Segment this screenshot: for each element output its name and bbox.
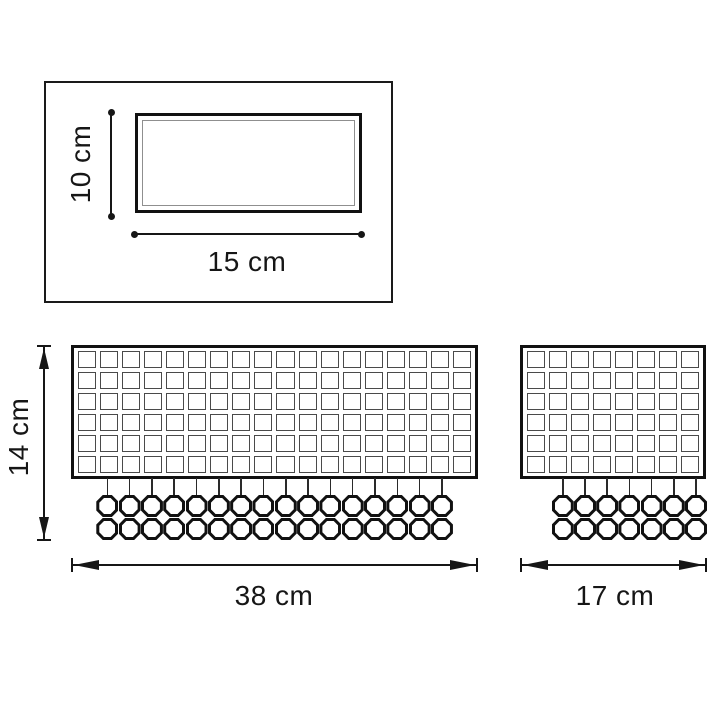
panel-crystal-cell (276, 372, 294, 389)
crystal-octagon (96, 495, 118, 517)
panel-crystal-cell (453, 393, 471, 410)
panel-crystal-cell (122, 414, 140, 431)
dimension-dot (108, 109, 115, 116)
panel-crystal-cell (122, 393, 140, 410)
dimension-cap (705, 558, 707, 572)
panel-crystal-cell (343, 456, 361, 473)
arrowhead-down-icon (39, 517, 49, 538)
panel-crystal-cell (122, 435, 140, 452)
panel-crystal-cell (100, 372, 118, 389)
crystal-octagon (96, 518, 118, 540)
panel-crystal-cell (409, 414, 427, 431)
panel-crystal-cell (166, 351, 184, 368)
panel-crystal-cell (659, 456, 677, 473)
crystal-octagon (552, 518, 574, 540)
panel-crystal-cell (122, 456, 140, 473)
panel-crystal-cell (188, 372, 206, 389)
panel-crystal-cell (593, 456, 611, 473)
dimension-label-width-large: 38 cm (204, 578, 344, 614)
dimension-label-height-front-view: 14 cm (1, 367, 37, 507)
dimension-label-height-top-view: 10 cm (63, 94, 99, 234)
crystal-octagon (641, 495, 663, 517)
panel-crystal-cell (615, 372, 633, 389)
crystal-wire (173, 478, 175, 496)
panel-crystal-cell (276, 435, 294, 452)
crystal-octagon (163, 518, 185, 540)
panel-crystal-cell (78, 393, 96, 410)
panel-crystal-cell (166, 435, 184, 452)
panel-crystal-cell (615, 456, 633, 473)
crystal-octagon (342, 495, 364, 517)
crystal-octagon (552, 495, 574, 517)
panel-crystal-cell (166, 414, 184, 431)
crystal-wire (651, 478, 653, 496)
crystal-wire (330, 478, 332, 496)
panel-crystal-cell (637, 393, 655, 410)
panel-crystal-cell (210, 351, 228, 368)
crystal-wire (419, 478, 421, 496)
crystal-octagon (641, 518, 663, 540)
panel-crystal-cell (527, 351, 545, 368)
crystal-wire (240, 478, 242, 496)
panel-crystal-cell (409, 456, 427, 473)
panel-crystal-cell (549, 393, 567, 410)
panel-crystal-cell (409, 393, 427, 410)
panel-crystal-cell (100, 456, 118, 473)
crystal-wire (562, 478, 564, 496)
panel-crystal-cell (232, 351, 250, 368)
panel-crystal-cell (188, 435, 206, 452)
top-view-fixture-inner-outline (142, 120, 355, 206)
crystal-wire (218, 478, 220, 496)
panel-crystal-cell (409, 435, 427, 452)
panel-crystal-cell (343, 435, 361, 452)
panel-crystal-cell (387, 393, 405, 410)
panel-crystal-cell (431, 414, 449, 431)
panel-crystal-cell (527, 435, 545, 452)
panel-crystal-cell (166, 456, 184, 473)
panel-crystal-cell (637, 372, 655, 389)
panel-crystal-cell (78, 351, 96, 368)
panel-crystal-cell (144, 351, 162, 368)
dimension-dot (358, 231, 365, 238)
crystal-octagon (618, 518, 640, 540)
crystal-octagon (685, 495, 707, 517)
panel-crystal-cell (122, 351, 140, 368)
arrowhead-left-icon (74, 560, 99, 570)
dimension-cap (37, 345, 51, 347)
crystal-octagon (596, 495, 618, 517)
panel-crystal-cell (365, 435, 383, 452)
panel-crystal-cell (365, 393, 383, 410)
crystal-wire (285, 478, 287, 496)
panel-crystal-cell (299, 414, 317, 431)
panel-crystal-cell (681, 372, 699, 389)
panel-crystal-cell (299, 351, 317, 368)
crystal-octagon (230, 495, 252, 517)
panel-crystal-cell (100, 435, 118, 452)
panel-crystal-cell (549, 435, 567, 452)
crystal-wire (107, 478, 109, 496)
panel-crystal-cell (299, 372, 317, 389)
panel-crystal-cell (527, 456, 545, 473)
arrowhead-right-icon (450, 560, 475, 570)
panel-crystal-cell (681, 351, 699, 368)
crystal-wire (352, 478, 354, 496)
panel-crystal-cell (78, 414, 96, 431)
crystal-octagon (663, 518, 685, 540)
panel-crystal-cell (659, 414, 677, 431)
crystal-octagon (141, 518, 163, 540)
crystal-wire (584, 478, 586, 496)
arrowhead-left-icon (523, 560, 548, 570)
top-view-fixture-body (135, 113, 362, 213)
panel-crystal-cell (409, 351, 427, 368)
crystal-wire (263, 478, 265, 496)
crystal-octagon (431, 495, 453, 517)
panel-crystal-cell (431, 435, 449, 452)
crystal-wire (151, 478, 153, 496)
dimension-label-width-top-view: 15 cm (177, 244, 317, 280)
panel-crystal-cell (365, 414, 383, 431)
lamp-dimension-drawing: 10 cm 15 cm 14 cm 38 cm 17 cm (0, 0, 720, 720)
panel-crystal-cell (321, 414, 339, 431)
crystal-octagon (119, 518, 141, 540)
panel-crystal-cell (431, 456, 449, 473)
panel-crystal-cell (188, 414, 206, 431)
panel-crystal-cell (276, 393, 294, 410)
crystal-octagon (431, 518, 453, 540)
panel-crystal-cell (343, 414, 361, 431)
crystal-octagon (409, 495, 431, 517)
panel-crystal-cell (210, 435, 228, 452)
dimension-label-width-small: 17 cm (545, 578, 685, 614)
crystal-octagon (319, 518, 341, 540)
panel-crystal-cell (144, 435, 162, 452)
panel-crystal-cell (615, 414, 633, 431)
panel-crystal-cell (365, 456, 383, 473)
dimension-line-14cm (43, 346, 45, 540)
dimension-cap (476, 558, 478, 572)
front-panel-large (71, 345, 478, 479)
panel-crystal-cell (431, 393, 449, 410)
panel-crystal-cell (659, 393, 677, 410)
crystal-wire (606, 478, 608, 496)
crystal-octagon (409, 518, 431, 540)
dimension-dot (108, 213, 115, 220)
panel-crystal-cell (681, 414, 699, 431)
crystal-octagon (186, 495, 208, 517)
panel-crystal-cell (276, 414, 294, 431)
panel-crystal-cell (254, 414, 272, 431)
crystal-wire (397, 478, 399, 496)
panel-crystal-cell (188, 456, 206, 473)
panel-crystal-cell (571, 456, 589, 473)
panel-crystal-cell (387, 435, 405, 452)
crystal-octagon (386, 495, 408, 517)
crystal-octagon (141, 495, 163, 517)
panel-crystal-cell (637, 351, 655, 368)
panel-crystal-cell (166, 393, 184, 410)
panel-crystal-cell (299, 435, 317, 452)
panel-crystal-cell (188, 351, 206, 368)
panel-crystal-cell (321, 372, 339, 389)
crystal-octagon (297, 518, 319, 540)
panel-crystal-cell (387, 414, 405, 431)
crystal-octagon (618, 495, 640, 517)
panel-crystal-cell (527, 414, 545, 431)
crystal-wire (307, 478, 309, 496)
crystal-octagon (663, 495, 685, 517)
crystal-wire (673, 478, 675, 496)
panel-crystal-cell (637, 435, 655, 452)
panel-crystal-cell (210, 393, 228, 410)
panel-crystal-cell (343, 393, 361, 410)
crystal-octagon (685, 518, 707, 540)
panel-crystal-cell (571, 372, 589, 389)
crystal-octagon (364, 495, 386, 517)
panel-crystal-cell (571, 414, 589, 431)
crystal-octagon (275, 518, 297, 540)
panel-crystal-cell (571, 393, 589, 410)
panel-crystal-cell (232, 456, 250, 473)
crystal-octagon (574, 518, 596, 540)
dimension-cap (520, 558, 522, 572)
panel-crystal-cell (593, 393, 611, 410)
dimension-line-15cm (134, 233, 361, 235)
crystal-octagon (208, 518, 230, 540)
panel-crystal-cell (659, 351, 677, 368)
crystal-octagon (119, 495, 141, 517)
panel-crystal-cell (210, 456, 228, 473)
panel-crystal-cell (387, 456, 405, 473)
panel-crystal-cell (122, 372, 140, 389)
panel-crystal-cell (549, 351, 567, 368)
panel-crystal-cell (254, 456, 272, 473)
crystal-wire (441, 478, 443, 496)
crystal-octagon (208, 495, 230, 517)
arrowhead-right-icon (679, 560, 704, 570)
panel-crystal-cell (299, 456, 317, 473)
crystal-octagon (596, 518, 618, 540)
panel-crystal-cell (254, 393, 272, 410)
panel-crystal-cell (431, 351, 449, 368)
panel-crystal-cell (276, 456, 294, 473)
panel-crystal-cell (78, 456, 96, 473)
panel-crystal-cell (387, 351, 405, 368)
crystal-octagon (342, 518, 364, 540)
panel-crystal-cell (210, 372, 228, 389)
panel-crystal-cell (681, 456, 699, 473)
panel-crystal-cell (254, 372, 272, 389)
dimension-cap (71, 558, 73, 572)
panel-crystal-cell (615, 351, 633, 368)
panel-crystal-cell (453, 435, 471, 452)
crystal-wire (629, 478, 631, 496)
panel-crystal-cell (276, 351, 294, 368)
panel-crystal-cell (100, 351, 118, 368)
panel-crystal-cell (254, 435, 272, 452)
panel-crystal-cell (549, 414, 567, 431)
panel-crystal-cell (659, 435, 677, 452)
panel-crystal-cell (232, 393, 250, 410)
panel-crystal-cell (527, 393, 545, 410)
panel-crystal-cell (615, 393, 633, 410)
crystal-octagon (252, 518, 274, 540)
crystal-wire (196, 478, 198, 496)
dimension-line-10cm (110, 112, 112, 216)
panel-crystal-cell (409, 372, 427, 389)
panel-crystal-cell (681, 435, 699, 452)
panel-crystal-cell (453, 372, 471, 389)
crystal-octagon (574, 495, 596, 517)
panel-crystal-cell (637, 456, 655, 473)
panel-crystal-cell (549, 372, 567, 389)
panel-crystal-cell (365, 351, 383, 368)
crystal-octagon (163, 495, 185, 517)
panel-crystal-cell (343, 372, 361, 389)
panel-crystal-cell (232, 435, 250, 452)
panel-crystal-cell (144, 456, 162, 473)
panel-crystal-cell (571, 351, 589, 368)
panel-crystal-cell (453, 456, 471, 473)
panel-crystal-cell (387, 372, 405, 389)
panel-crystal-cell (659, 372, 677, 389)
crystal-octagon (275, 495, 297, 517)
panel-crystal-cell (593, 372, 611, 389)
panel-crystal-cell (571, 435, 589, 452)
panel-crystal-cell (144, 414, 162, 431)
crystal-octagon (364, 518, 386, 540)
crystal-octagon (386, 518, 408, 540)
panel-crystal-cell (637, 414, 655, 431)
dimension-line-38cm (72, 564, 477, 566)
panel-crystal-cell (593, 435, 611, 452)
panel-crystal-cell (593, 414, 611, 431)
panel-crystal-cell (210, 414, 228, 431)
crystal-wire (129, 478, 131, 496)
panel-crystal-cell (232, 414, 250, 431)
panel-crystal-cell (453, 414, 471, 431)
panel-crystal-cell (321, 351, 339, 368)
panel-crystal-cell (527, 372, 545, 389)
panel-crystal-cell (431, 372, 449, 389)
panel-crystal-cell (321, 456, 339, 473)
panel-crystal-cell (615, 435, 633, 452)
crystal-wire (374, 478, 376, 496)
panel-crystal-cell (166, 372, 184, 389)
crystal-octagon (297, 495, 319, 517)
panel-crystal-cell (100, 393, 118, 410)
arrowhead-up-icon (39, 348, 49, 369)
panel-crystal-cell (453, 351, 471, 368)
dimension-dot (131, 231, 138, 238)
panel-crystal-cell (100, 414, 118, 431)
crystal-octagon (186, 518, 208, 540)
panel-crystal-cell (188, 393, 206, 410)
crystal-octagon (319, 495, 341, 517)
panel-crystal-cell (365, 372, 383, 389)
panel-crystal-cell (299, 393, 317, 410)
panel-crystal-cell (232, 372, 250, 389)
crystal-octagon (230, 518, 252, 540)
panel-crystal-cell (321, 435, 339, 452)
front-panel-small (520, 345, 706, 479)
crystal-wire (695, 478, 697, 496)
panel-crystal-cell (144, 393, 162, 410)
dimension-cap (37, 539, 51, 541)
panel-crystal-cell (549, 456, 567, 473)
panel-crystal-cell (681, 393, 699, 410)
panel-crystal-cell (321, 393, 339, 410)
panel-crystal-cell (593, 351, 611, 368)
panel-crystal-cell (144, 372, 162, 389)
crystal-octagon (252, 495, 274, 517)
panel-crystal-cell (254, 351, 272, 368)
panel-crystal-cell (343, 351, 361, 368)
panel-crystal-cell (78, 372, 96, 389)
panel-crystal-cell (78, 435, 96, 452)
